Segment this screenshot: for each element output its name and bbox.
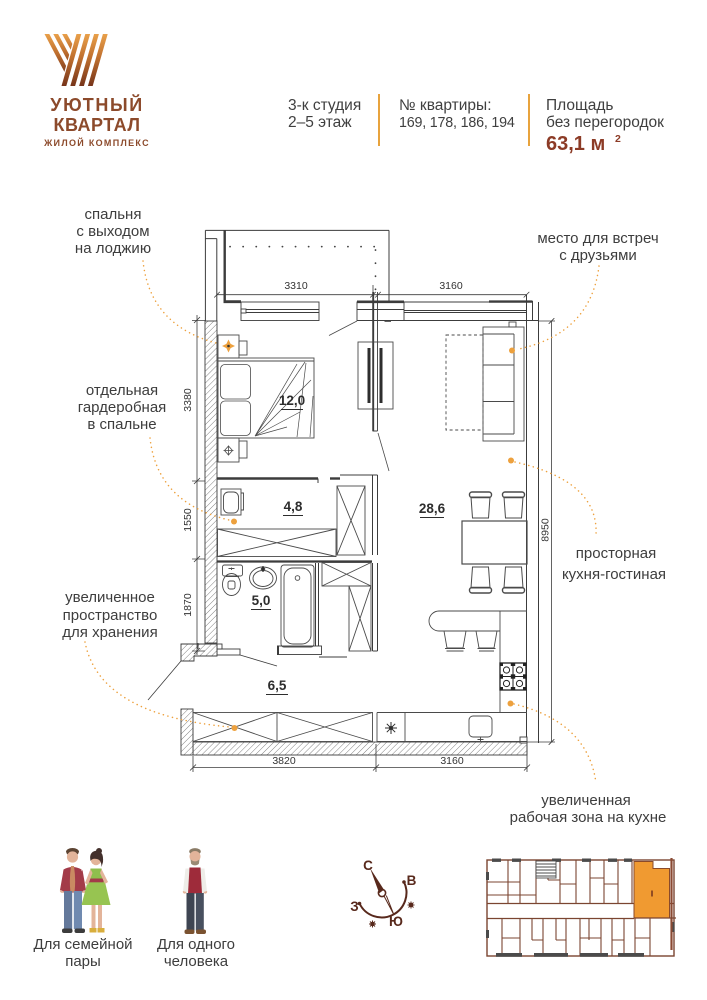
svg-text:кухня-гостиная: кухня-гостиная: [562, 566, 666, 583]
svg-text:для хранения: для хранения: [62, 624, 157, 641]
svg-text:З: З: [350, 899, 358, 914]
svg-text:Для одного: Для одного: [157, 936, 235, 953]
svg-text:просторная: просторная: [576, 545, 656, 562]
svg-text:человека: человека: [164, 953, 229, 970]
svg-text:увеличенная: увеличенная: [541, 792, 630, 809]
svg-text:на лоджию: на лоджию: [75, 240, 151, 257]
svg-text:12,0: 12,0: [279, 393, 305, 408]
svg-text:гардеробная: гардеробная: [78, 399, 167, 416]
svg-text:место для встреч: место для встреч: [537, 230, 658, 247]
svg-text:28,6: 28,6: [419, 501, 446, 516]
svg-text:КВАРТАЛ: КВАРТАЛ: [53, 115, 140, 135]
svg-text:3160: 3160: [439, 280, 463, 292]
svg-text:Ю: Ю: [389, 914, 403, 929]
svg-text:спальня: спальня: [85, 206, 142, 223]
svg-text:пространство: пространство: [63, 607, 158, 624]
svg-text:3-к студия: 3-к студия: [288, 97, 361, 114]
svg-text:С: С: [363, 858, 373, 873]
svg-text:пары: пары: [65, 953, 101, 970]
svg-text:с выходом: с выходом: [76, 223, 149, 240]
svg-text:3380: 3380: [182, 388, 194, 412]
svg-text:2: 2: [615, 133, 621, 145]
svg-text:с друзьями: с друзьями: [559, 247, 637, 264]
svg-text:без перегородок: без перегородок: [546, 114, 664, 131]
svg-text:2–5 этаж: 2–5 этаж: [288, 114, 352, 131]
svg-text:В: В: [407, 873, 417, 888]
svg-text:4,8: 4,8: [284, 499, 303, 514]
svg-text:в спальне: в спальне: [87, 416, 156, 433]
svg-text:3310: 3310: [284, 280, 308, 292]
svg-text:Площадь: Площадь: [546, 97, 613, 114]
svg-text:3820: 3820: [272, 755, 296, 767]
svg-text:1550: 1550: [182, 508, 194, 532]
svg-text:63,1 м: 63,1 м: [546, 133, 605, 155]
svg-text:1870: 1870: [182, 593, 194, 617]
svg-text:ЖИЛОЙ КОМПЛЕКС: ЖИЛОЙ КОМПЛЕКС: [43, 137, 150, 148]
svg-text:3160: 3160: [440, 755, 464, 767]
svg-text:УЮТНЫЙ: УЮТНЫЙ: [50, 94, 143, 115]
svg-text:увеличенное: увеличенное: [65, 589, 155, 606]
svg-text:8950: 8950: [540, 518, 552, 542]
svg-text:169, 178, 186, 194: 169, 178, 186, 194: [399, 115, 515, 131]
svg-text:6,5: 6,5: [268, 678, 287, 693]
svg-text:отдельная: отдельная: [86, 382, 158, 399]
svg-text:рабочая зона на кухне: рабочая зона на кухне: [510, 809, 667, 826]
svg-text:Для семейной: Для семейной: [33, 936, 132, 953]
svg-text:№ квартиры:: № квартиры:: [399, 97, 492, 114]
svg-text:5,0: 5,0: [252, 593, 271, 608]
